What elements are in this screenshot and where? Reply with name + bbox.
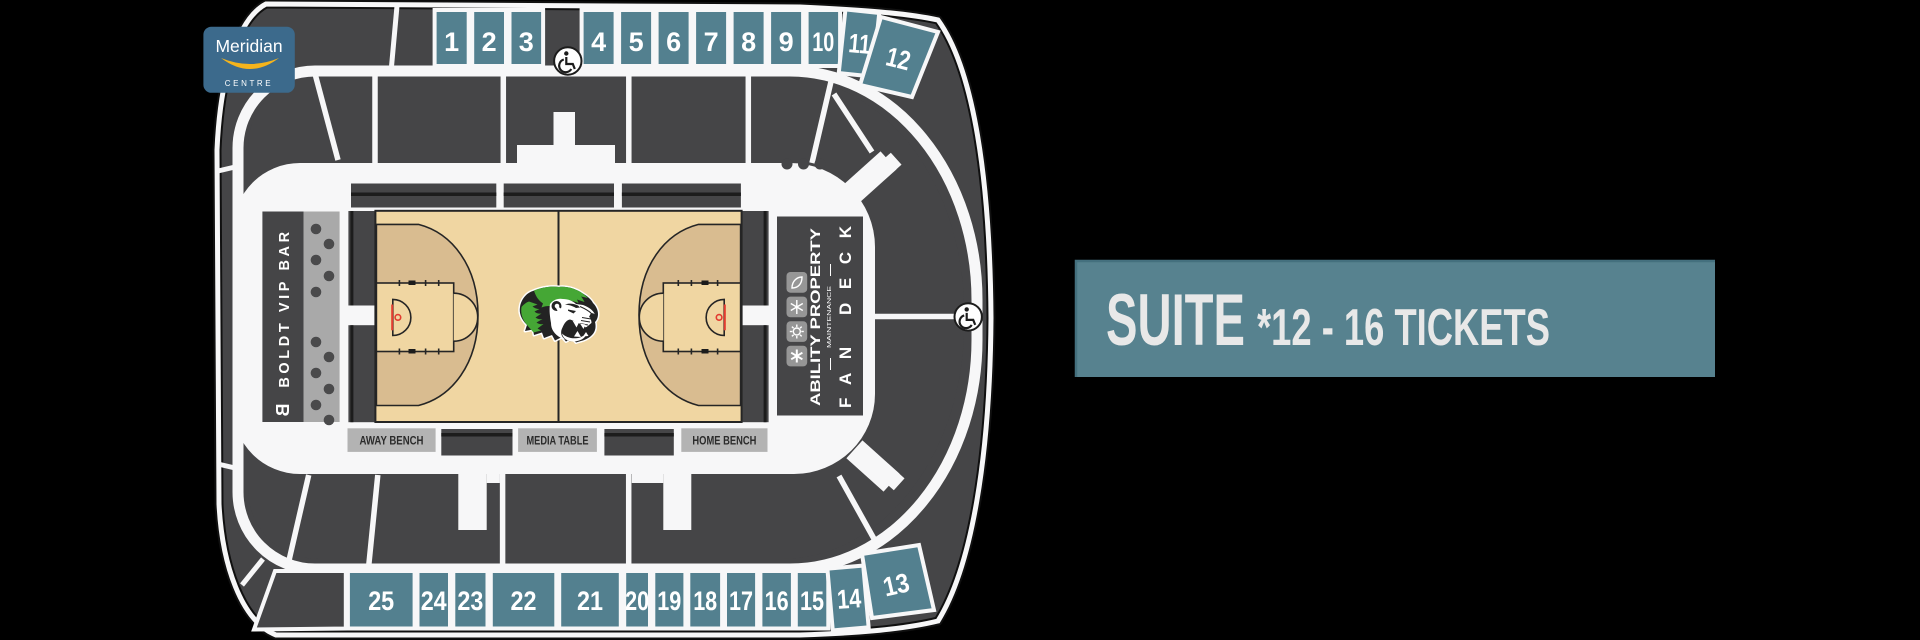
svg-text:2: 2	[482, 27, 497, 57]
svg-text:B: B	[273, 404, 293, 417]
svg-text:4: 4	[591, 27, 606, 57]
svg-text:AWAY BENCH: AWAY BENCH	[360, 434, 424, 448]
svg-text:25: 25	[368, 586, 394, 616]
svg-text:6: 6	[666, 27, 681, 57]
svg-text:22: 22	[511, 586, 537, 616]
svg-text:Meridian: Meridian	[215, 36, 282, 56]
svg-text:17: 17	[729, 586, 753, 616]
svg-text:18: 18	[693, 586, 717, 616]
svg-text:*12 - 16 TICKETS: *12 - 16 TICKETS	[1257, 299, 1550, 357]
svg-text:1: 1	[444, 27, 459, 57]
svg-text:9: 9	[779, 27, 794, 57]
svg-text:14: 14	[836, 583, 862, 615]
svg-text:SUITE: SUITE	[1106, 280, 1245, 361]
svg-text:11: 11	[847, 28, 872, 60]
svg-text:MEDIA TABLE: MEDIA TABLE	[527, 434, 589, 448]
svg-text:5: 5	[629, 27, 644, 57]
svg-text:MAINTENANCE: MAINTENANCE	[827, 285, 833, 348]
svg-text:CENTRE: CENTRE	[225, 79, 274, 88]
svg-text:BOLDT VIP BAR: BOLDT VIP BAR	[277, 228, 293, 387]
svg-text:21: 21	[577, 586, 603, 616]
svg-text:7: 7	[704, 27, 719, 57]
svg-text:8: 8	[741, 27, 756, 57]
svg-text:16: 16	[765, 586, 789, 616]
svg-text:15: 15	[800, 586, 824, 616]
svg-text:20: 20	[625, 586, 649, 616]
svg-text:23: 23	[457, 586, 483, 616]
svg-text:3: 3	[519, 27, 534, 57]
svg-text:10: 10	[812, 27, 834, 57]
svg-text:24: 24	[421, 586, 447, 616]
svg-text:ABILITY PROPERTY: ABILITY PROPERTY	[808, 228, 823, 406]
svg-text:HOME BENCH: HOME BENCH	[692, 434, 756, 448]
svg-text:19: 19	[657, 586, 681, 616]
